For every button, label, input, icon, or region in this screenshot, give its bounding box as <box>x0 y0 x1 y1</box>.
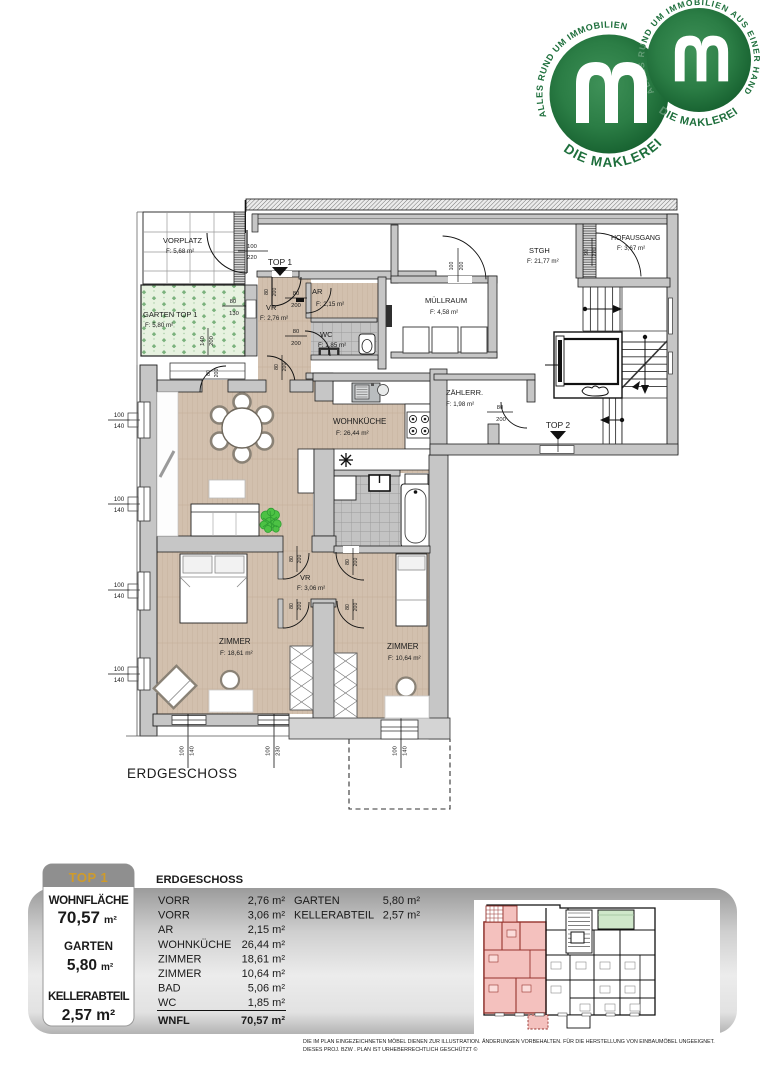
svg-text:200: 200 <box>353 603 359 612</box>
svg-text:80: 80 <box>293 329 299 335</box>
svg-text:WOHNFLÄCHE: WOHNFLÄCHE <box>49 894 129 907</box>
svg-text:100: 100 <box>247 244 257 250</box>
svg-text:GARTEN: GARTEN <box>64 940 113 953</box>
svg-text:STGH: STGH <box>529 246 550 255</box>
svg-text:2,57 m²: 2,57 m² <box>62 1007 115 1024</box>
svg-text:WC: WC <box>158 997 176 1009</box>
svg-text:2,15 m²: 2,15 m² <box>248 924 286 936</box>
svg-text:WNFL: WNFL <box>158 1015 190 1027</box>
svg-text:5,06 m²: 5,06 m² <box>248 983 286 995</box>
svg-text:AR: AR <box>312 287 323 296</box>
svg-text:BAD: BAD <box>158 983 181 995</box>
svg-text:80: 80 <box>293 291 299 297</box>
svg-text:TOP 2: TOP 2 <box>546 420 571 430</box>
svg-text:F: 3,67 m²: F: 3,67 m² <box>617 245 645 252</box>
svg-text:18,61 m²: 18,61 m² <box>242 953 286 965</box>
svg-text:VORR: VORR <box>158 895 190 907</box>
svg-text:AR: AR <box>158 924 173 936</box>
svg-text:F: 5,68 m²: F: 5,68 m² <box>166 248 194 255</box>
svg-text:GARTEN: GARTEN <box>294 895 340 907</box>
svg-text:200: 200 <box>209 336 215 346</box>
svg-text:GARTEN TOP 1: GARTEN TOP 1 <box>143 310 197 319</box>
svg-text:F: 26,44 m²: F: 26,44 m² <box>336 430 369 437</box>
svg-text:ZIMMER: ZIMMER <box>158 953 201 965</box>
svg-text:130: 130 <box>229 311 239 317</box>
svg-text:200: 200 <box>297 602 303 611</box>
svg-text:WOHNKÜCHE: WOHNKÜCHE <box>333 417 386 426</box>
svg-text:F: 21,77 m²: F: 21,77 m² <box>527 258 559 265</box>
svg-text:100: 100 <box>393 746 399 756</box>
svg-text:KELLERABTEIL: KELLERABTEIL <box>294 910 374 922</box>
svg-text:KELLERABTEIL: KELLERABTEIL <box>48 990 130 1003</box>
svg-text:80: 80 <box>345 559 351 565</box>
svg-text:ERDGESCHOSS: ERDGESCHOSS <box>127 766 238 781</box>
svg-text:140: 140 <box>114 507 125 514</box>
svg-text:100: 100 <box>449 262 455 271</box>
svg-text:230: 230 <box>276 746 282 756</box>
svg-text:80: 80 <box>264 289 270 295</box>
svg-text:1,85 m²: 1,85 m² <box>248 997 286 1009</box>
svg-text:F: 1,98 m²: F: 1,98 m² <box>446 401 474 408</box>
svg-text:m²: m² <box>101 962 114 973</box>
svg-text:TOP 1: TOP 1 <box>69 870 109 885</box>
svg-text:80: 80 <box>289 556 295 562</box>
svg-text:ZIMMER: ZIMMER <box>387 642 419 651</box>
svg-text:2,76 m²: 2,76 m² <box>248 895 286 907</box>
svg-text:m²: m² <box>104 914 117 926</box>
svg-text:F: 2,76 m²: F: 2,76 m² <box>260 315 288 322</box>
svg-text:DIE IM PLAN EINGEZEICHNETEN MÖ: DIE IM PLAN EINGEZEICHNETEN MÖBEL DIENEN… <box>303 1038 715 1045</box>
svg-text:MÜLLRAUM: MÜLLRAUM <box>425 296 467 305</box>
svg-text:200: 200 <box>282 363 288 372</box>
svg-text:100: 100 <box>266 746 272 756</box>
svg-text:80: 80 <box>289 603 295 609</box>
svg-text:10,64 m²: 10,64 m² <box>242 968 286 980</box>
svg-text:80: 80 <box>206 370 212 376</box>
svg-text:80: 80 <box>230 299 236 305</box>
svg-text:200: 200 <box>353 558 359 567</box>
svg-text:220: 220 <box>592 248 598 257</box>
svg-text:VR: VR <box>266 303 277 312</box>
svg-text:100: 100 <box>114 412 125 419</box>
svg-text:200: 200 <box>214 369 220 378</box>
svg-text:ERDGESCHOSS: ERDGESCHOSS <box>156 874 244 886</box>
svg-text:140: 140 <box>190 746 196 756</box>
svg-text:F: 1,85 m²: F: 1,85 m² <box>318 342 346 349</box>
svg-text:100: 100 <box>114 666 125 673</box>
svg-text:70,57: 70,57 <box>57 908 100 927</box>
svg-text:200: 200 <box>459 262 465 271</box>
svg-text:26,44 m²: 26,44 m² <box>242 939 286 951</box>
svg-text:3,06 m²: 3,06 m² <box>248 910 286 922</box>
svg-text:ZIMMER: ZIMMER <box>219 637 251 646</box>
svg-text:ZIMMER: ZIMMER <box>158 968 201 980</box>
svg-text:140: 140 <box>403 746 409 756</box>
svg-text:WOHNKÜCHE: WOHNKÜCHE <box>158 939 231 951</box>
svg-text:DIESES PROJ. BZW . PLAN IST: DIESES PROJ. BZW . PLAN IST URHEBERRECHT… <box>303 1046 478 1053</box>
svg-text:5,80: 5,80 <box>67 957 97 974</box>
svg-text:VORPLATZ: VORPLATZ <box>163 236 202 245</box>
svg-text:220: 220 <box>247 255 257 261</box>
svg-text:TOP 1: TOP 1 <box>268 257 293 267</box>
svg-text:200: 200 <box>291 303 301 309</box>
svg-text:140: 140 <box>114 593 125 600</box>
svg-text:200: 200 <box>496 417 506 423</box>
svg-text:WC: WC <box>320 330 333 339</box>
svg-text:70,57 m²: 70,57 m² <box>241 1015 285 1027</box>
svg-text:200: 200 <box>272 288 278 297</box>
svg-text:2,57 m²: 2,57 m² <box>383 910 421 922</box>
svg-text:100: 100 <box>114 496 125 503</box>
svg-text:VORR: VORR <box>158 910 190 922</box>
svg-text:200: 200 <box>291 341 301 347</box>
svg-text:F: 18,61 m²: F: 18,61 m² <box>220 650 253 657</box>
svg-text:VR: VR <box>300 573 311 582</box>
svg-text:F: 3,06 m²: F: 3,06 m² <box>297 585 325 592</box>
svg-text:F: 10,64 m²: F: 10,64 m² <box>388 655 421 662</box>
svg-text:80: 80 <box>274 364 280 370</box>
svg-text:5,80 m²: 5,80 m² <box>383 895 421 907</box>
svg-text:F: 5,80 m²: F: 5,80 m² <box>145 322 173 329</box>
svg-text:80: 80 <box>345 604 351 610</box>
svg-text:90: 90 <box>584 249 590 255</box>
svg-text:100: 100 <box>180 746 186 756</box>
svg-text:200: 200 <box>297 555 303 564</box>
svg-text:F: 4,58 m²: F: 4,58 m² <box>430 309 458 316</box>
svg-text:140: 140 <box>114 677 125 684</box>
svg-text:100: 100 <box>114 582 125 589</box>
svg-text:140: 140 <box>114 423 125 430</box>
svg-text:140: 140 <box>200 336 206 346</box>
svg-text:F: 2,15 m²: F: 2,15 m² <box>316 301 344 308</box>
svg-text:ZÄHLERR.: ZÄHLERR. <box>446 388 483 397</box>
